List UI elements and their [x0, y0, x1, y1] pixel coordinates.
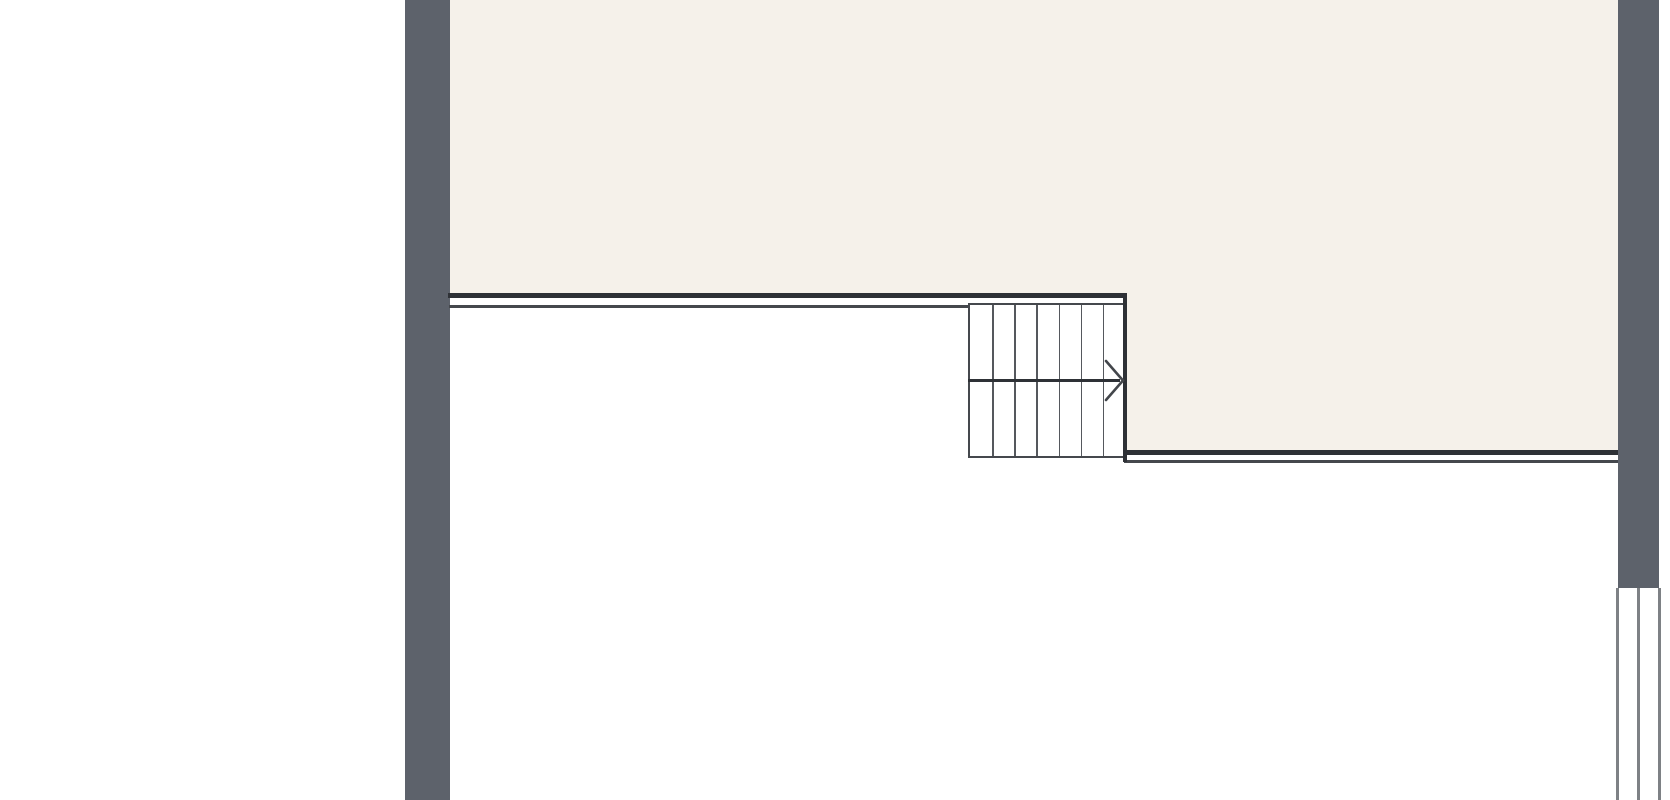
lower-wall-line-inner [1124, 460, 1618, 463]
window-pane-line [1658, 588, 1661, 800]
lower-wall-line-outer [1127, 450, 1618, 455]
window-pane-line [1637, 588, 1640, 800]
right-wall [1618, 0, 1659, 588]
left-wall [405, 0, 450, 800]
right-window [1616, 588, 1661, 800]
upper-wall-line-inner [449, 305, 968, 308]
right-floor-area [1127, 0, 1618, 452]
upper-wall-line-outer [448, 293, 1127, 298]
stair-direction-arrow-icon [1101, 356, 1129, 406]
window-pane-line [1616, 588, 1619, 800]
floor-plan-canvas [0, 0, 1670, 800]
stair-walk-line [968, 379, 1120, 382]
upper-floor-area [450, 0, 1129, 293]
